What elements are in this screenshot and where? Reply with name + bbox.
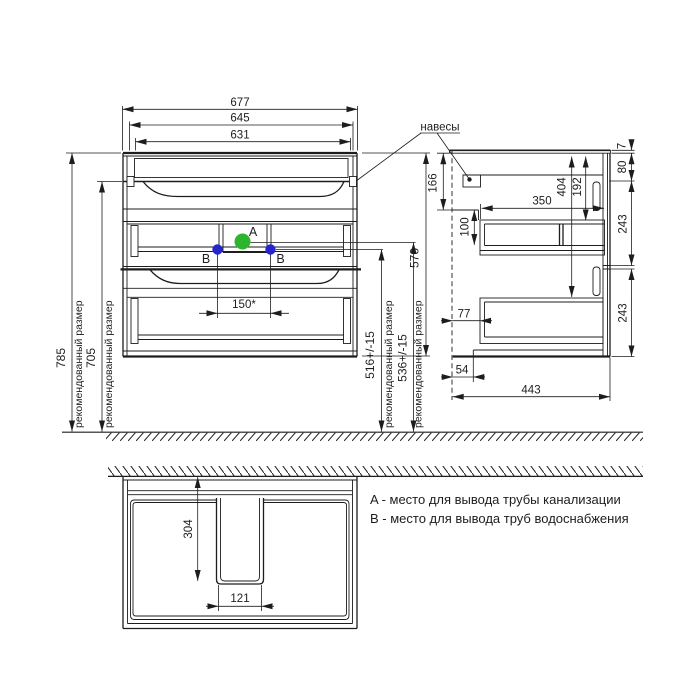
dim-516-label: 516+/-15 bbox=[363, 331, 377, 379]
dim-570-label: 570 bbox=[408, 248, 422, 268]
drawer2-handle-slot bbox=[593, 267, 600, 296]
hanger-bracket-left bbox=[127, 177, 134, 187]
drawer-groove-curve bbox=[150, 270, 339, 284]
front-view-cabinet: A B B bbox=[121, 153, 362, 357]
dim-705-note: рекомендованный размер bbox=[103, 300, 115, 428]
point-b-left-label: B bbox=[202, 252, 210, 266]
legend-line-a: A - место для вывода трубы канализации bbox=[370, 492, 621, 507]
dim-80-label: 80 bbox=[617, 161, 629, 174]
floor-hatching bbox=[62, 432, 643, 476]
dim-350-label: 350 bbox=[532, 196, 551, 208]
dim-166-label: 166 bbox=[428, 173, 440, 192]
dim-100-label: 100 bbox=[460, 217, 472, 236]
dim-121-label: 121 bbox=[230, 593, 249, 605]
dim-631-label: 631 bbox=[230, 129, 249, 141]
dim-77-label: 77 bbox=[458, 309, 471, 321]
front-view-dimensions: 677 645 631 785 рекомендованный размер 7… bbox=[54, 97, 430, 432]
water-point-b-right-marker bbox=[265, 244, 275, 254]
hanger-bracket-right bbox=[350, 177, 357, 187]
dim-243-top-label: 243 bbox=[618, 214, 630, 233]
dim-536-note: рекомендованный размер bbox=[413, 300, 425, 428]
dim-645-label: 645 bbox=[230, 113, 249, 125]
dim-785-label: 785 bbox=[54, 348, 68, 368]
legend-line-b: B - место для вывода труб водоснабжения bbox=[370, 511, 629, 526]
bottom-plan-view: 304 121 bbox=[123, 476, 357, 628]
dim-677-label: 677 bbox=[230, 97, 249, 109]
pipe-cutout bbox=[217, 498, 264, 584]
vanity-installation-drawing: A B B 677 645 631 785 рекомендованный ра… bbox=[0, 0, 700, 700]
technical-drawing-page: A B B 677 645 631 785 рекомендованный ра… bbox=[0, 0, 700, 700]
legend: A - место для вывода трубы канализации B… bbox=[370, 492, 629, 526]
water-point-b-left-marker bbox=[212, 244, 222, 254]
drawer1-handle-slot bbox=[593, 182, 600, 211]
dim-536-label: 536+/-15 bbox=[396, 334, 410, 382]
dim-54-label: 54 bbox=[456, 365, 469, 377]
point-a-label: A bbox=[249, 225, 258, 239]
hangers-label: навесы bbox=[420, 122, 459, 134]
sink-curve bbox=[143, 182, 344, 197]
wall-hanger bbox=[463, 175, 481, 187]
hangers-callout: навесы bbox=[358, 122, 472, 182]
dim-443-label: 443 bbox=[521, 385, 540, 397]
dim-705-label: 705 bbox=[84, 348, 98, 368]
dim-404-label: 404 bbox=[557, 177, 569, 197]
dim-516-note: рекомендованный размер bbox=[383, 300, 395, 428]
dim-192-label: 192 bbox=[572, 177, 584, 196]
dim-7-label: 7 bbox=[617, 143, 629, 149]
point-b-right-label: B bbox=[276, 252, 284, 266]
dim-150-label: 150* bbox=[232, 299, 256, 311]
dim-243-bottom-label: 243 bbox=[618, 303, 630, 322]
dim-304-label: 304 bbox=[183, 519, 195, 539]
hanger-leader-dot bbox=[467, 177, 471, 181]
